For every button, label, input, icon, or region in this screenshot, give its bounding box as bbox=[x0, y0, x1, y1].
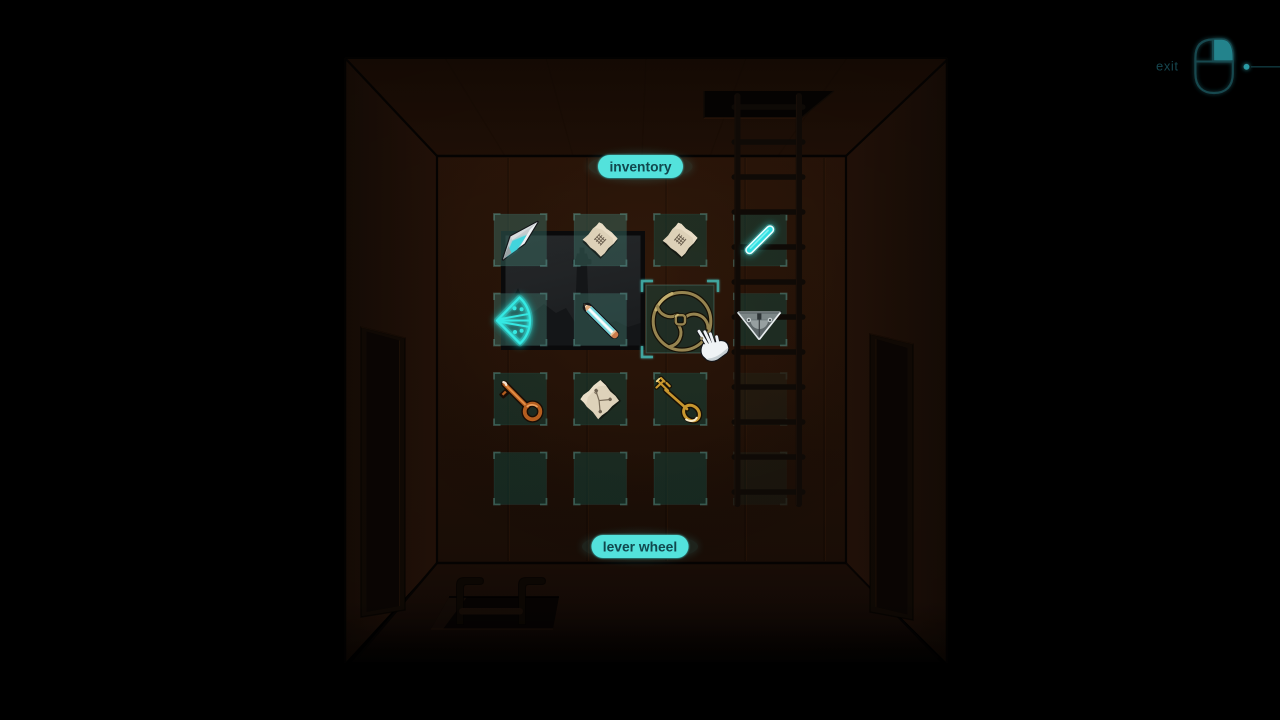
svg-text:inventory: inventory bbox=[609, 160, 671, 175]
svg-text:lever wheel: lever wheel bbox=[603, 540, 677, 555]
svg-text:exit: exit bbox=[1156, 59, 1179, 74]
